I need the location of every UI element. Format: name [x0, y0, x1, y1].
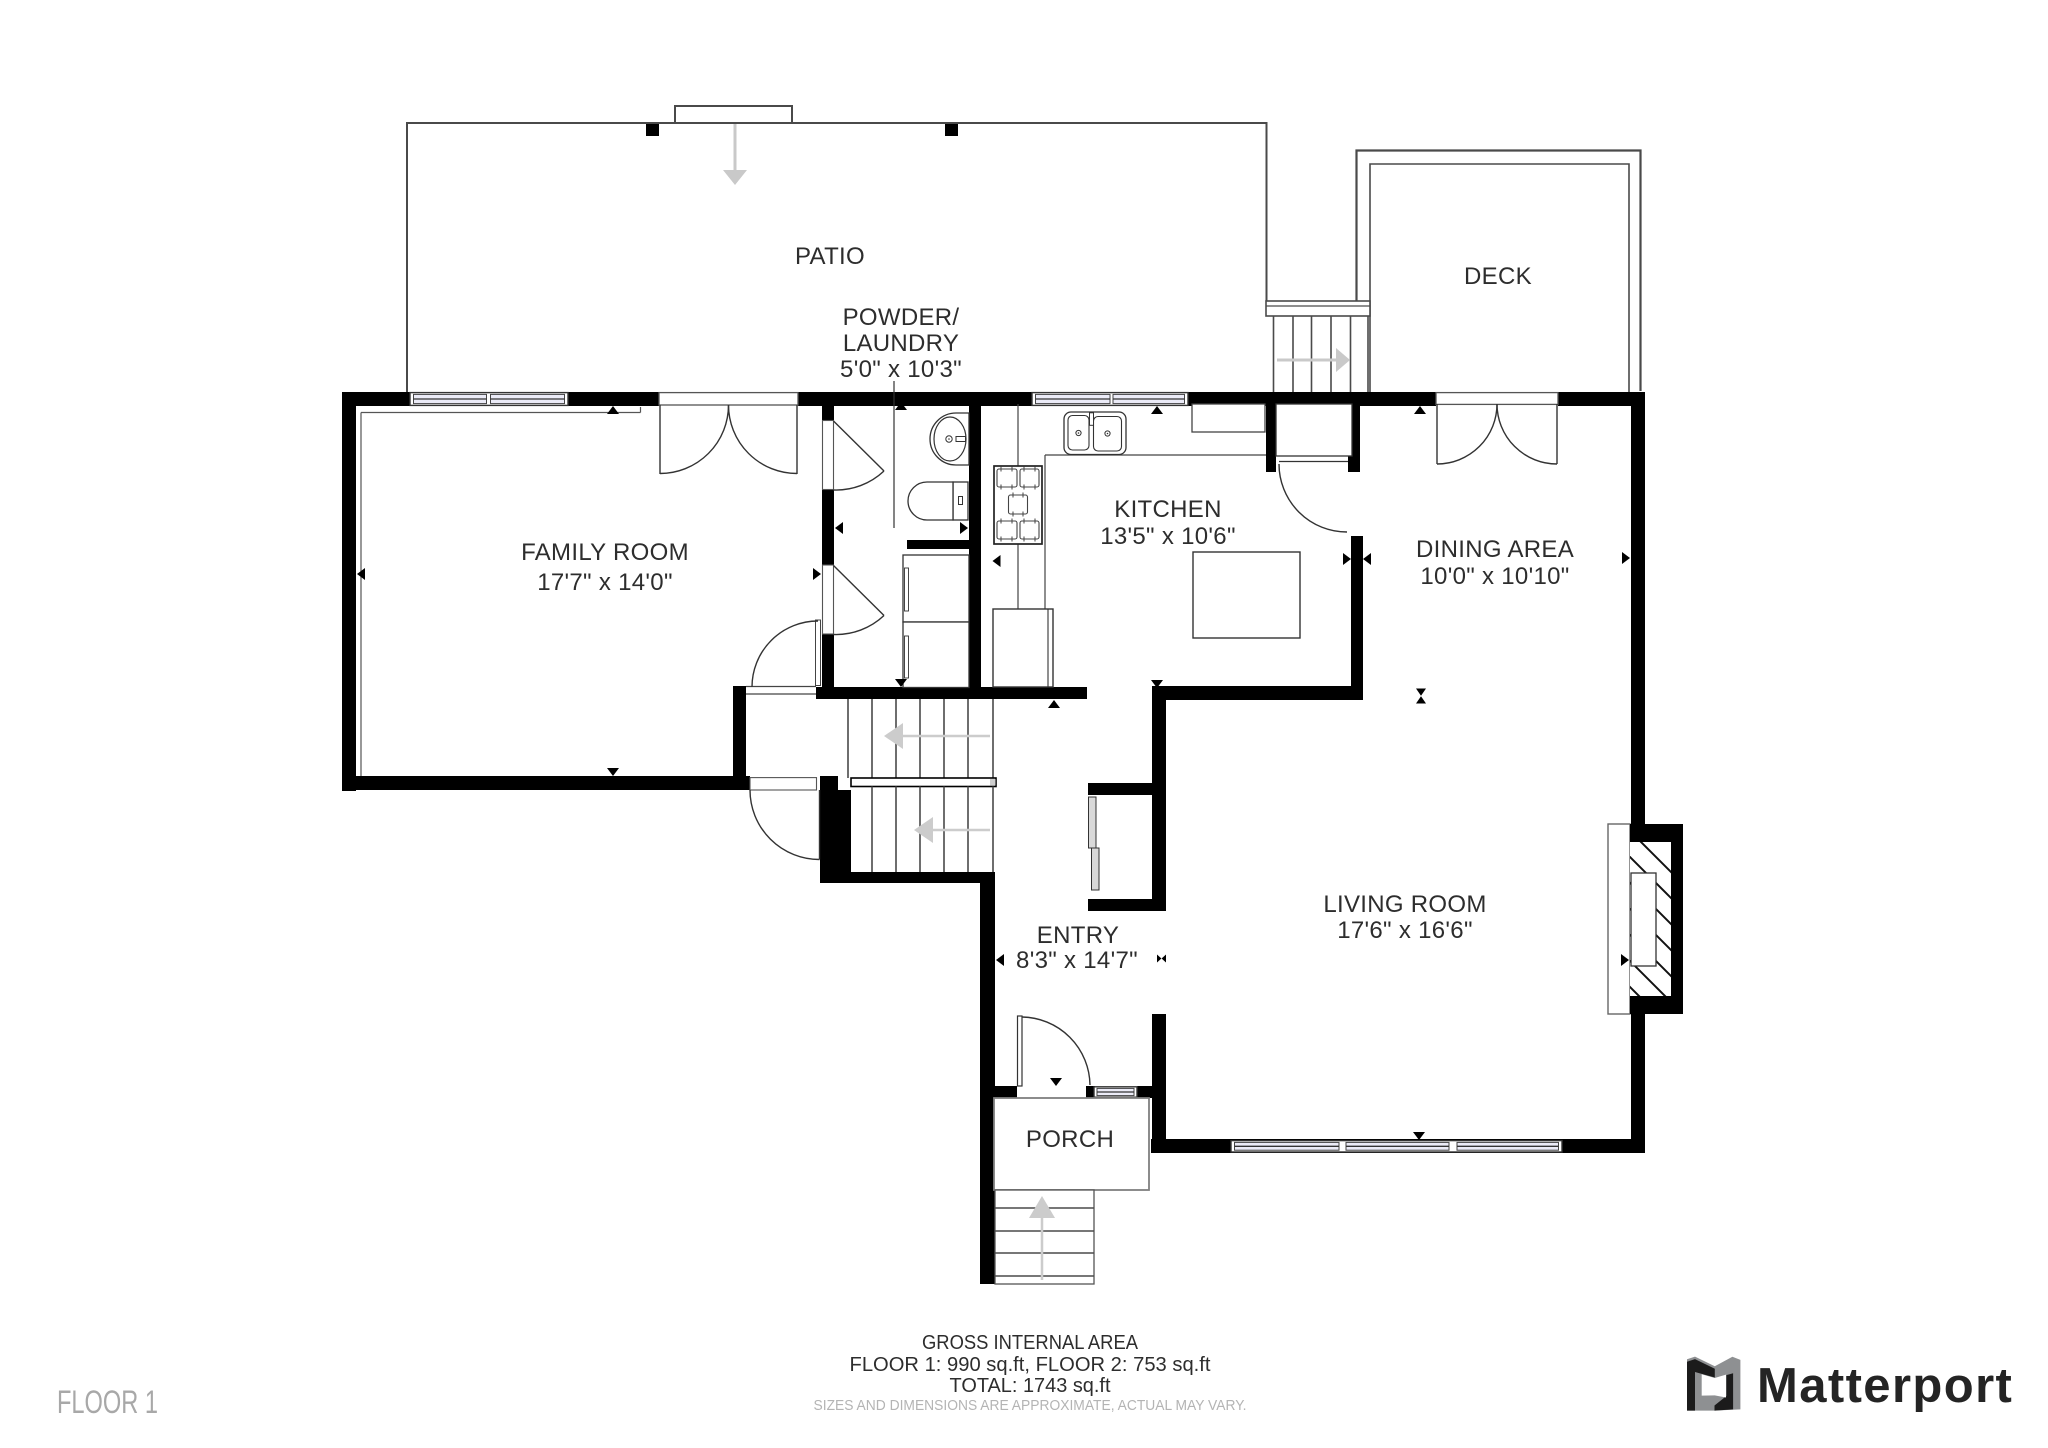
svg-text:DINING AREA: DINING AREA — [1416, 536, 1574, 563]
svg-text:SIZES AND DIMENSIONS ARE APPRO: SIZES AND DIMENSIONS ARE APPROXIMATE, AC… — [814, 1398, 1247, 1414]
svg-text:5'0" x 10'3": 5'0" x 10'3" — [840, 356, 962, 383]
svg-text:13'5" x 10'6": 13'5" x 10'6" — [1100, 523, 1236, 550]
svg-text:PATIO: PATIO — [795, 243, 865, 270]
svg-text:FLOOR 1: FLOOR 1 — [57, 1384, 158, 1420]
svg-text:ENTRY: ENTRY — [1037, 922, 1119, 949]
svg-text:10'0" x 10'10": 10'0" x 10'10" — [1420, 563, 1569, 590]
svg-text:PORCH: PORCH — [1026, 1126, 1114, 1153]
svg-text:FAMILY ROOM: FAMILY ROOM — [521, 539, 689, 566]
svg-text:Matterport: Matterport — [1757, 1359, 2013, 1413]
svg-text:GROSS INTERNAL AREA: GROSS INTERNAL AREA — [922, 1331, 1138, 1354]
svg-text:LAUNDRY: LAUNDRY — [843, 330, 959, 357]
svg-text:FLOOR 1: 990 sq.ft, FLOOR 2: 7: FLOOR 1: 990 sq.ft, FLOOR 2: 753 sq.ft — [850, 1353, 1211, 1376]
svg-text:POWDER/: POWDER/ — [843, 304, 960, 331]
svg-text:TOTAL: 1743 sq.ft: TOTAL: 1743 sq.ft — [950, 1374, 1111, 1397]
svg-text:DECK: DECK — [1464, 263, 1532, 290]
svg-text:17'7" x 14'0": 17'7" x 14'0" — [537, 569, 673, 596]
svg-text:8'3" x 14'7": 8'3" x 14'7" — [1016, 947, 1138, 974]
svg-text:LIVING ROOM: LIVING ROOM — [1323, 891, 1486, 918]
svg-text:17'6" x 16'6": 17'6" x 16'6" — [1337, 917, 1473, 944]
svg-text:KITCHEN: KITCHEN — [1114, 496, 1221, 523]
